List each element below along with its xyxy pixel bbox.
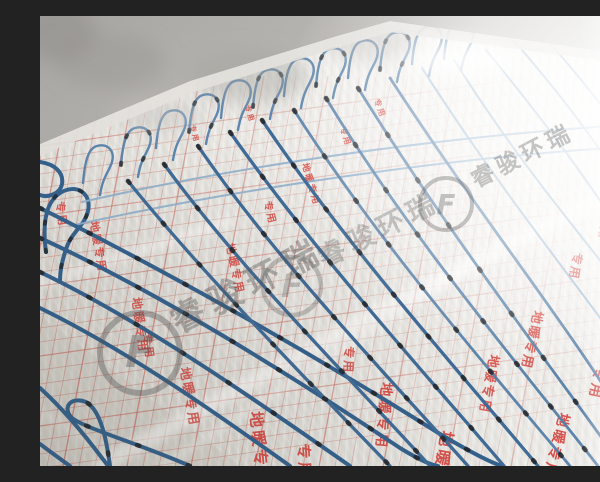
watermark-logo-monogram: F [125,327,155,378]
watermark-logo-monogram: F [281,267,303,305]
light-glare [40,16,600,466]
photo-canvas: 专用 地暖专用 地暖专用 专用 地暖专用 地暖专用 专用 地暖专用 专用 专用 … [40,16,600,466]
underfloor-heating-photo: 专用 地暖专用 地暖专用 专用 地暖专用 地暖专用 专用 地暖专用 专用 专用 … [40,16,600,466]
corner-vignette [40,16,600,466]
watermark-logo-monogram: F [436,188,455,221]
